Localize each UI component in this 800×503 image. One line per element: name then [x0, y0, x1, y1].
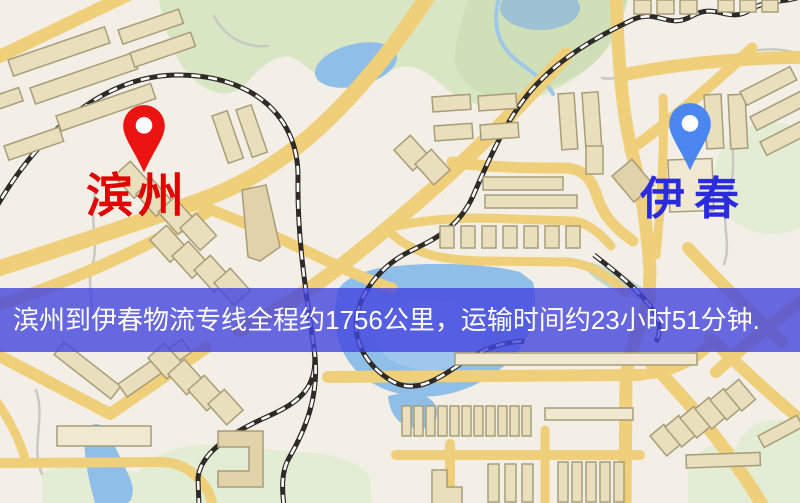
logistics-route-map: 滨州 伊春 滨州到伊春物流专线全程约1756公里，运输时间约23小时51分钟. [0, 0, 800, 503]
origin-pin-icon[interactable] [122, 104, 166, 174]
route-info-text: 滨州到伊春物流专线全程约1756公里，运输时间约23小时51分钟. [0, 288, 800, 352]
destination-pin-icon[interactable] [668, 102, 712, 172]
pin-hole [682, 115, 699, 132]
origin-label: 滨州 [86, 172, 188, 219]
map-background [0, 0, 800, 503]
route-info-banner: 滨州到伊春物流专线全程约1756公里，运输时间约23小时51分钟. [0, 288, 800, 352]
destination-label: 伊春 [640, 176, 748, 221]
pin-hole [136, 117, 153, 134]
